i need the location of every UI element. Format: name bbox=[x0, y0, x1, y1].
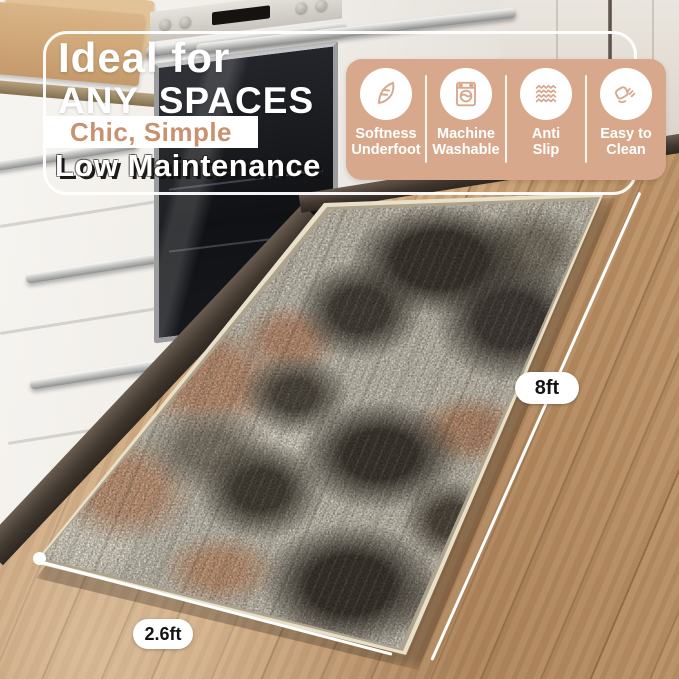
feature-anti-slip: Anti Slip bbox=[506, 59, 586, 180]
length-label-pill: 8ft bbox=[515, 372, 579, 404]
feature-machine-washable: Machine Washable bbox=[426, 59, 506, 180]
dimension-line-dot bbox=[33, 552, 46, 565]
width-label-pill: 2.6ft bbox=[133, 619, 193, 649]
feature-divider bbox=[505, 75, 507, 163]
oven-display bbox=[212, 5, 270, 25]
washing-machine-icon bbox=[440, 68, 492, 120]
width-label: 2.6ft bbox=[144, 624, 181, 645]
feature-label: Easy to Clean bbox=[600, 126, 652, 158]
oven-knob bbox=[160, 18, 171, 30]
subtitle-bar: Chic, Simple bbox=[44, 116, 258, 148]
feather-icon bbox=[360, 68, 412, 120]
feature-label: Anti Slip bbox=[532, 126, 560, 158]
subtitle-text: Chic, Simple bbox=[70, 117, 232, 148]
feature-panel: Softness Underfoot Machine Washable bbox=[346, 59, 666, 180]
length-label: 8ft bbox=[535, 377, 559, 400]
anti-slip-icon bbox=[520, 68, 572, 120]
feature-divider bbox=[425, 75, 427, 163]
product-image: 8ft 2.6ft Ideal for ANY SPACES Chic, Sim… bbox=[0, 0, 679, 679]
tagline: Low Maintenance bbox=[55, 148, 321, 184]
oven-knob bbox=[180, 16, 191, 28]
feature-label: Machine Washable bbox=[432, 126, 499, 158]
feature-label: Softness Underfoot bbox=[351, 126, 420, 158]
feature-softness: Softness Underfoot bbox=[346, 59, 426, 180]
hand-wipe-icon bbox=[600, 68, 652, 120]
title-line1: Ideal for bbox=[58, 34, 230, 82]
feature-divider bbox=[585, 75, 587, 163]
oven-knob bbox=[296, 2, 307, 14]
feature-easy-clean: Easy to Clean bbox=[586, 59, 666, 180]
oven-knob bbox=[316, 0, 327, 12]
